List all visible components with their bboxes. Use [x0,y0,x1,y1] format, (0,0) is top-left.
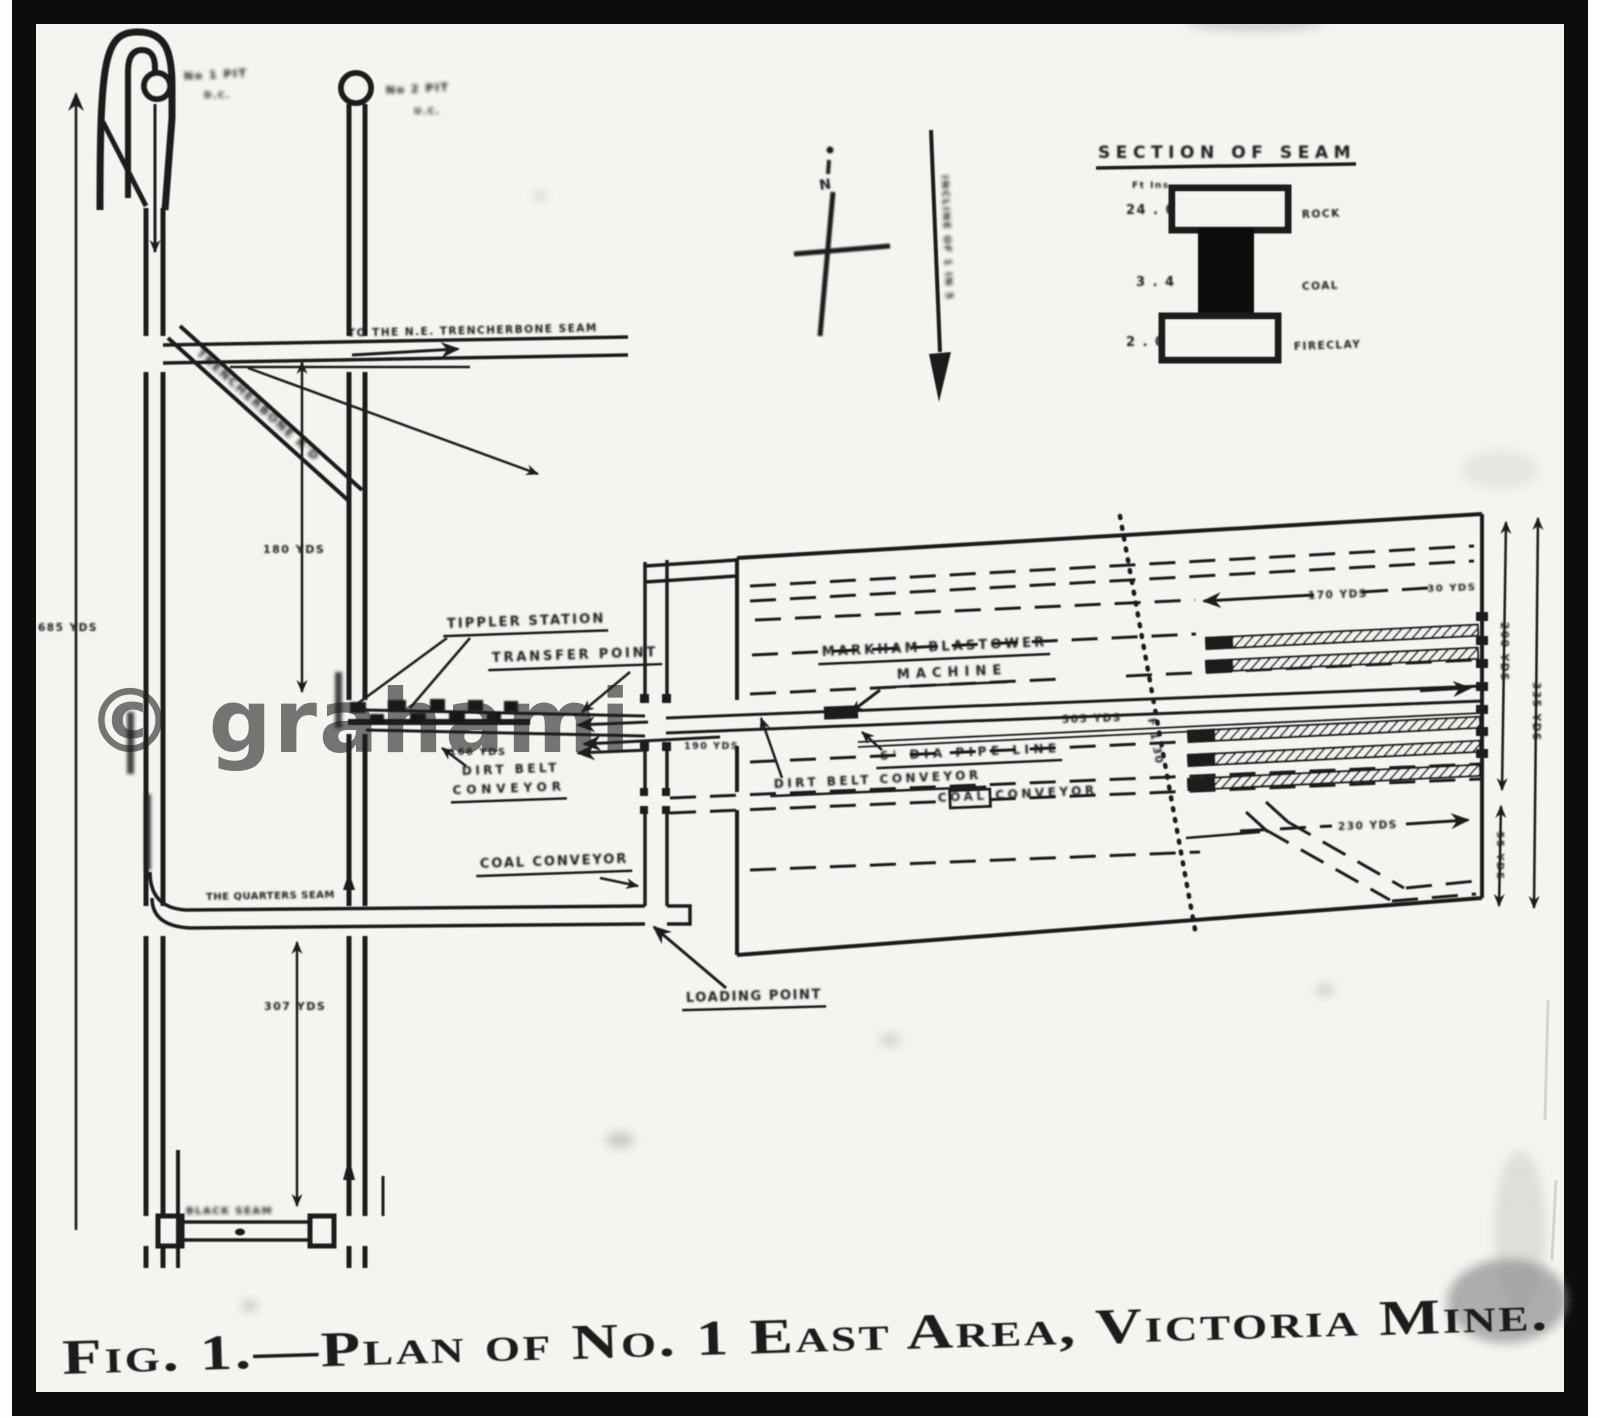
panel-width-bottom-label: 55 YDS [1494,831,1505,880]
main-road-length-label: 505 YDS [1062,712,1122,726]
pit2-sublabel: U.C. [414,107,441,117]
coal-thickness: 3 . 4 [1136,275,1176,290]
fireclay-thickness: 2 . 0 [1126,335,1166,350]
watermark: © grahami [86,670,632,773]
pit-spacing-label: 180 YDS [263,543,325,556]
face-advance-label: 170 YDS [1308,588,1368,602]
north-label: N [818,176,833,194]
rock-name: ROCK [1302,208,1341,221]
panel-width-total-label: 335 YDS [1530,682,1542,742]
quarters-depth-label: 307 YDS [264,1000,326,1013]
scanned-figure-page: 685 YDS No 1 PIT D.C. No 2 PIT U.C. TO T… [0,0,1600,1418]
seam-section-title: SECTION OF SEAM [1098,143,1352,163]
markham-machine-symbol [824,705,858,719]
mine-plan-figure: 685 YDS No 1 PIT D.C. No 2 PIT U.C. TO T… [0,0,1600,1418]
coal-layer-box [1198,228,1254,320]
shaft-depth-label: 685 YDS [38,622,98,634]
rock-layer-box [1172,188,1288,230]
face-right-label: 30 YDS [1427,582,1477,595]
black-seam-label: BLACK SEAM [186,1206,273,1217]
quarters-seam-label: THE QUARTERS SEAM [206,890,336,903]
coal-name: COAL [1302,280,1340,293]
fireclay-layer-box [1162,316,1278,360]
panel-width-top-label: 200 YDS [1498,622,1510,682]
rock-thickness: 24 . 0 [1126,203,1176,218]
seam-units-label: Ft Ins [1132,181,1170,191]
bottom-road-label: 230 YDS [1338,819,1398,833]
fireclay-name: FIRECLAY [1294,339,1362,353]
transfer-length-label: 190 YDS [684,741,739,752]
pit1-sublabel: D.C. [204,91,231,101]
